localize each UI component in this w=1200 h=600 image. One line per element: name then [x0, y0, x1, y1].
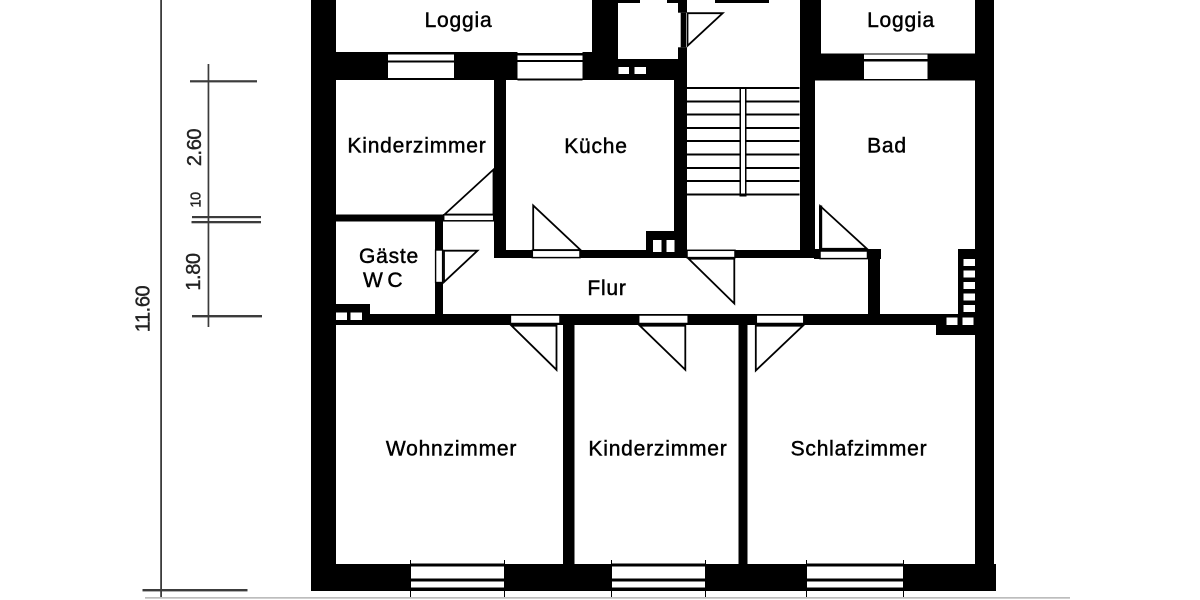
svg-text:Bad: Bad [867, 135, 907, 158]
svg-text:WC: WC [363, 269, 407, 292]
svg-text:Loggia: Loggia [425, 9, 493, 32]
svg-text:Wohnzimmer: Wohnzimmer [386, 438, 517, 461]
svg-text:10: 10 [189, 192, 205, 208]
svg-text:Küche: Küche [564, 135, 628, 158]
svg-text:Kinderzimmer: Kinderzimmer [347, 135, 486, 158]
svg-text:Loggia: Loggia [867, 9, 935, 32]
svg-text:2.60: 2.60 [184, 129, 206, 167]
svg-text:1.80: 1.80 [183, 253, 205, 291]
svg-text:Flur: Flur [587, 277, 626, 300]
svg-text:Gäste: Gäste [359, 245, 419, 268]
svg-text:11.60: 11.60 [133, 285, 155, 332]
svg-text:Kinderzimmer: Kinderzimmer [588, 438, 727, 461]
svg-text:Schlafzimmer: Schlafzimmer [791, 438, 928, 461]
